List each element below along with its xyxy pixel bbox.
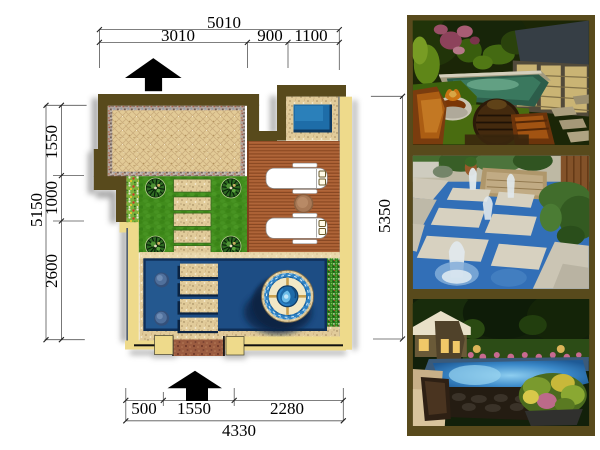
svg-text:1100: 1100: [294, 26, 327, 45]
svg-text:5010: 5010: [207, 13, 241, 32]
svg-text:2280: 2280: [270, 399, 304, 418]
svg-text:1550: 1550: [42, 125, 61, 159]
svg-text:1000: 1000: [42, 181, 61, 215]
svg-text:3010: 3010: [161, 26, 195, 45]
svg-text:900: 900: [257, 26, 283, 45]
svg-text:2600: 2600: [42, 254, 61, 288]
svg-text:1550: 1550: [177, 399, 211, 418]
svg-text:500: 500: [131, 399, 157, 418]
svg-text:4330: 4330: [222, 421, 256, 440]
svg-text:5350: 5350: [375, 199, 394, 233]
